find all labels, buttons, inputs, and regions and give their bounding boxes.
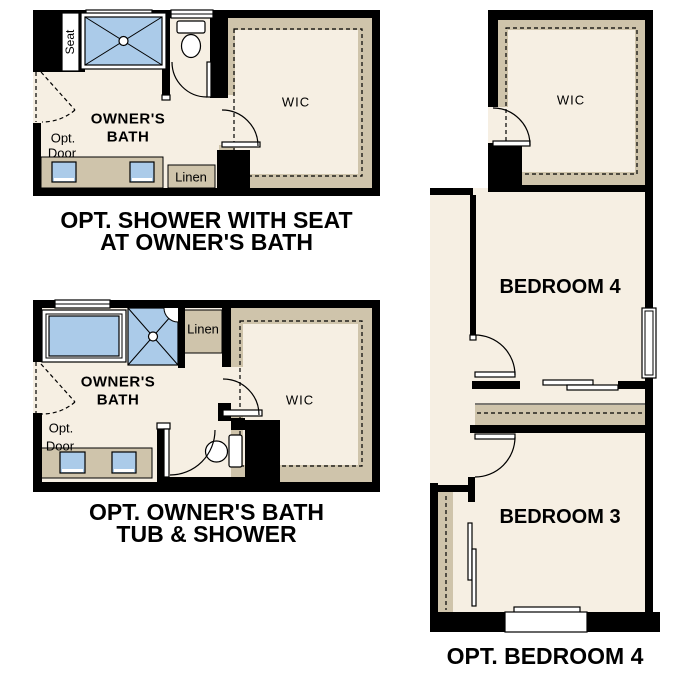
linen-label: Linen (175, 171, 207, 184)
opt-door-label-line2: Door (48, 147, 76, 160)
shower-fixture (128, 308, 178, 365)
caption-tub-and-shower: OPT. OWNER'S BATH TUB & SHOWER (33, 501, 380, 545)
linen-label: Linen (187, 323, 219, 336)
owners-bath-label-line1: OWNER'S (91, 112, 166, 127)
bedroom3-label: BEDROOM 3 (499, 507, 620, 527)
tub-fixture (42, 310, 126, 362)
caption-line: TUB & SHOWER (33, 523, 380, 545)
window (55, 300, 110, 308)
plan-opt-bedroom4-drawing (430, 10, 660, 632)
owners-bath-label-line2: BATH (97, 393, 140, 408)
plan-opt-bedroom4: WIC BEDROOM 4 BEDROOM 3 (430, 10, 660, 632)
wic-label: WIC (286, 394, 314, 407)
bedroom4-label: BEDROOM 4 (499, 277, 620, 297)
plan-shower-with-seat: Seat OWNER'S BATH Opt. Door Linen WIC (33, 10, 380, 196)
opt-door-label-line1: Opt. (51, 132, 76, 145)
shower-drain (119, 37, 128, 46)
caption-line: AT OWNER'S BATH (33, 231, 380, 253)
wic-label: WIC (282, 96, 310, 109)
caption-line: OPT. BEDROOM 4 (430, 645, 660, 667)
bedroom3-closet (438, 492, 453, 612)
floorplan-sheet: Seat OWNER'S BATH Opt. Door Linen WIC OP… (0, 0, 687, 687)
bedroom-floor (430, 188, 645, 612)
owners-bath-label-line2: BATH (107, 130, 150, 145)
caption-line: OPT. SHOWER WITH SEAT (33, 209, 380, 231)
seat-label: Seat (64, 30, 76, 55)
caption-opt-bedroom4: OPT. BEDROOM 4 (430, 645, 660, 667)
opt-door-label-line2: Door (46, 440, 74, 453)
owners-bath-label-line1: OWNER'S (81, 375, 156, 390)
window (505, 607, 587, 632)
caption-line: OPT. OWNER'S BATH (33, 501, 380, 523)
wic-label: WIC (557, 94, 585, 107)
shower-fixture (81, 13, 166, 69)
plan-tub-and-shower: OWNER'S BATH Opt. Door Linen WIC (33, 300, 380, 492)
opt-door-label-line1: Opt. (49, 422, 74, 435)
caption-shower-with-seat: OPT. SHOWER WITH SEAT AT OWNER'S BATH (33, 209, 380, 253)
shower-drain (149, 332, 158, 341)
door-jamb (162, 95, 170, 100)
window (642, 308, 656, 378)
bedroom4-closet (475, 404, 647, 425)
plan-shower-with-seat-drawing (33, 10, 380, 196)
